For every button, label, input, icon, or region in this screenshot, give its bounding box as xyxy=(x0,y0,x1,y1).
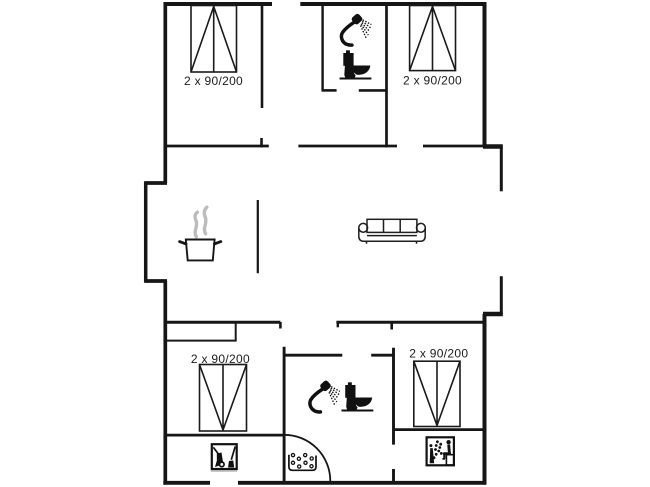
svg-text:2 x 90/200: 2 x 90/200 xyxy=(191,352,250,366)
svg-text:2 x 90/200: 2 x 90/200 xyxy=(184,74,243,88)
svg-text:2 x 90/200: 2 x 90/200 xyxy=(409,347,468,361)
svg-text:2 x 90/200: 2 x 90/200 xyxy=(403,74,462,88)
